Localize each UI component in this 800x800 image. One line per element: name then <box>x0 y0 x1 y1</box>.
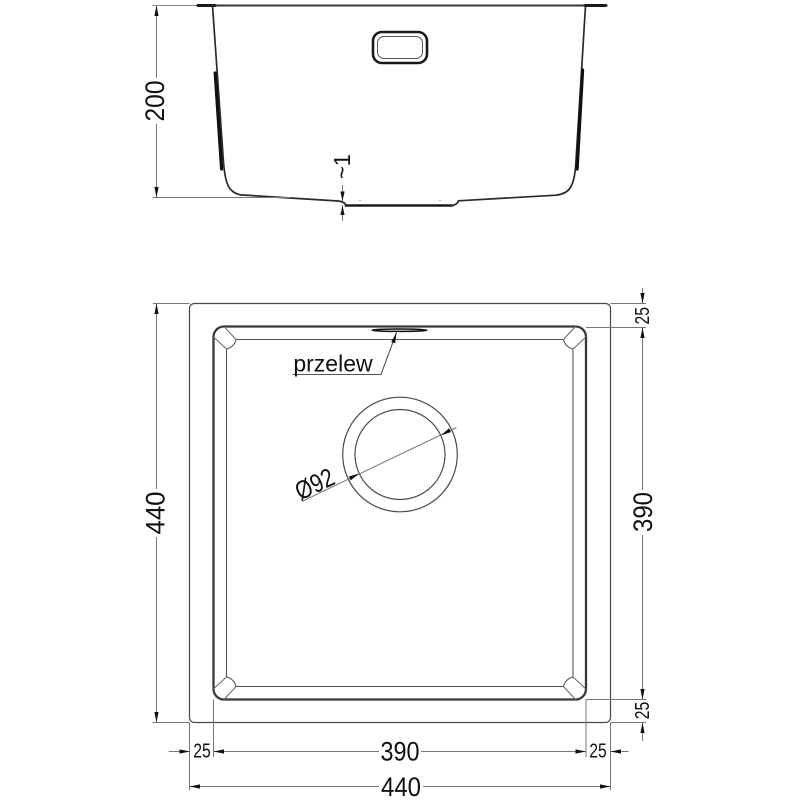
svg-text:przelew: przelew <box>293 351 373 377</box>
svg-text:~1: ~1 <box>329 154 355 179</box>
svg-text:440: 440 <box>381 772 421 800</box>
svg-text:390: 390 <box>381 737 420 767</box>
svg-text:440: 440 <box>141 492 171 535</box>
svg-text:390: 390 <box>628 492 658 532</box>
svg-text:25: 25 <box>632 702 654 720</box>
svg-text:25: 25 <box>632 307 654 325</box>
svg-text:25: 25 <box>193 741 211 763</box>
svg-text:200: 200 <box>140 81 170 122</box>
svg-text:25: 25 <box>589 741 607 763</box>
